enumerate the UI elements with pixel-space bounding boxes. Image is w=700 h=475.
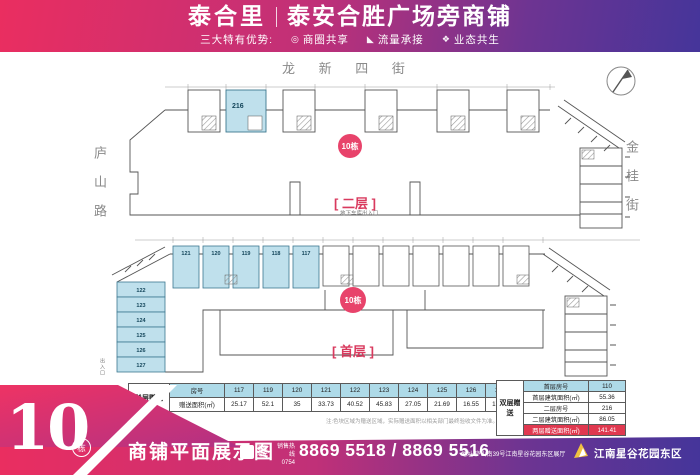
page-title: 泰安合胜广场旁商铺 [287, 5, 512, 28]
flow-icon: ◣ [367, 34, 375, 45]
advantage-label: 流量承接 [378, 32, 424, 47]
floor-label-lower: [ 首层 ] [332, 344, 374, 359]
advantage-item: ◣ 流量承接 [367, 32, 424, 47]
advantage-label: 商圈共享 [303, 32, 349, 47]
unit-label: 122 [136, 288, 145, 294]
dimension-line [135, 237, 640, 243]
street-label-left: 庐山路 [90, 146, 109, 233]
hotline-text: 销售热线 [273, 444, 295, 460]
unit-cluster [188, 90, 220, 132]
share-circle-icon: ◎ [291, 34, 300, 45]
developer-logo: 泰 [240, 445, 254, 459]
service-core [582, 150, 594, 159]
unit-label: 118 [272, 251, 281, 257]
footer-background [0, 385, 700, 475]
lower-floor-plan: 122 123 124 125 126 127 121 120 [95, 230, 650, 384]
unit-216-highlight: 216 [226, 90, 266, 132]
header-band: 泰合里 泰安合胜广场旁商铺 三大特有优势: ◎ 商圈共享 ◣ 流量承接 ❖ 业态… [0, 0, 700, 52]
advantages-row: 三大特有优势: ◎ 商圈共享 ◣ 流量承接 ❖ 业态共生 [200, 32, 500, 47]
footer-band: 10 栋 商铺平面展示图 泰 泰业地产 销售热线 0754 8869 5518 … [0, 385, 700, 475]
advantage-item: ◎ 商圈共享 [291, 32, 349, 47]
eco-icon: ❖ [442, 34, 451, 45]
project-fan-icon [571, 441, 591, 461]
unit-label: 120 [211, 251, 220, 257]
svg-text:10栋: 10栋 [342, 141, 359, 151]
dimension-line [165, 84, 555, 90]
left-unit-column: 122 123 124 125 126 127 [117, 282, 165, 372]
advantage-label: 业态共生 [454, 32, 500, 47]
project-name: 江南星谷花园东区 [594, 446, 682, 461]
unit-label: 121 [181, 251, 190, 257]
unit-cluster [365, 90, 397, 132]
street-label-top: 龙 新 四 街 [282, 58, 415, 77]
upper-unit-clusters: 216 [188, 90, 539, 132]
header-divider [276, 7, 277, 27]
hotline-label: 销售热线 0754 [273, 444, 295, 467]
unit-label: 125 [136, 333, 145, 339]
advantages-label: 三大特有优势: [200, 32, 273, 47]
address-text: 地址:庐山南39号江南星谷花园东区展厅 [461, 449, 565, 458]
unit-label: 127 [136, 363, 145, 369]
unit-cluster [507, 90, 539, 132]
garage-entrance-note: 地下车库出入口 [340, 209, 379, 217]
unit-label: 123 [136, 303, 145, 309]
brand-name: 泰合里 [188, 5, 266, 28]
entrance-note-left: 出入口 [99, 358, 106, 376]
unit-label: 119 [242, 251, 251, 257]
unit-label: 126 [136, 348, 145, 354]
unit-label: 117 [302, 251, 311, 257]
service-core [567, 298, 579, 307]
developer-name: 泰业地产 [257, 446, 270, 459]
unit-cluster [437, 90, 469, 132]
svg-text:10栋: 10栋 [345, 295, 362, 305]
advantage-item: ❖ 业态共生 [442, 32, 500, 47]
poster: 泰合里 泰安合胜广场旁商铺 三大特有优势: ◎ 商圈共享 ◣ 流量承接 ❖ 业态… [0, 0, 700, 475]
unit-label: 124 [136, 318, 146, 324]
unit-label-216: 216 [232, 103, 244, 110]
unit-cluster [283, 90, 315, 132]
header-title-row: 泰合里 泰安合胜广场旁商铺 [188, 5, 512, 28]
top-unit-row: 121 120 119 118 117 [173, 246, 529, 288]
building-badge-upper: 10栋 [338, 134, 362, 158]
building-badge-lower: 10栋 [340, 287, 366, 313]
building-unit-word: 栋 [72, 438, 91, 457]
area-code: 0754 [273, 460, 295, 468]
